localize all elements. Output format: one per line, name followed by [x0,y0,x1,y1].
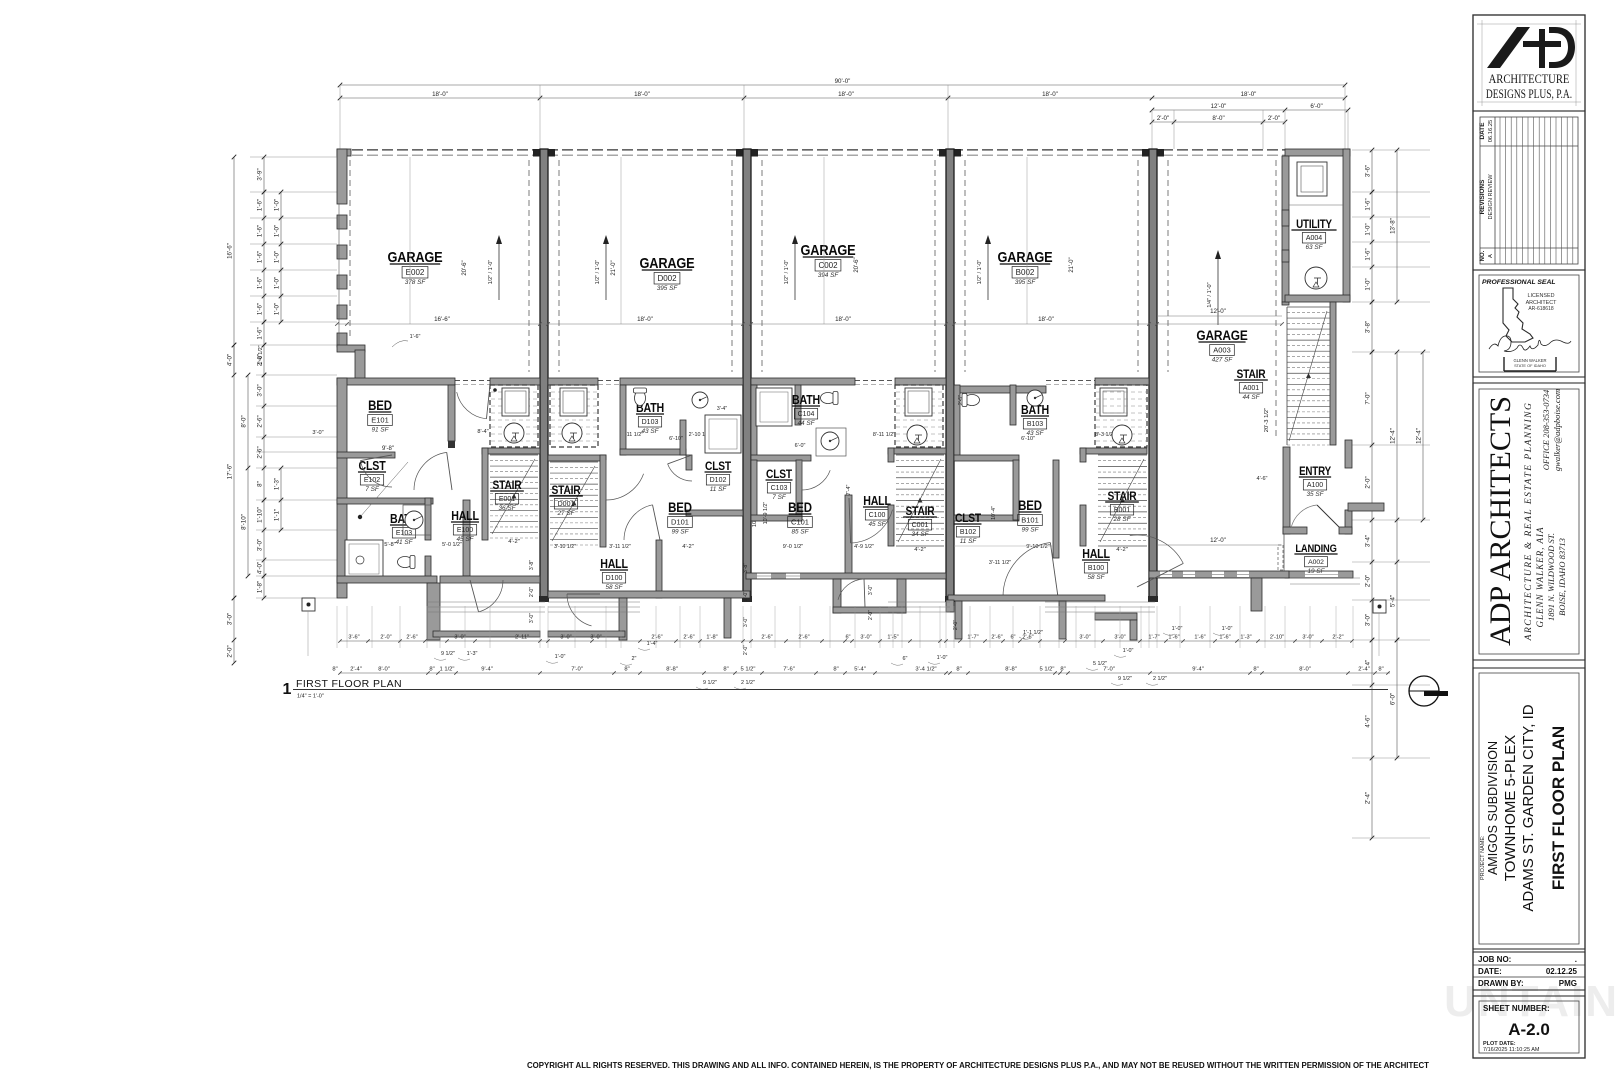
svg-text:3'-0": 3'-0" [743,617,749,627]
svg-text:3'-0": 3'-0" [227,613,234,625]
svg-text:2'-11": 2'-11" [515,635,529,641]
svg-text:.: . [1575,955,1577,964]
svg-text:8": 8" [1253,666,1258,672]
svg-text:1'-0": 1'-0" [555,654,566,660]
svg-text:4'-2": 4'-2" [914,547,926,553]
svg-text:16'-6": 16'-6" [434,316,450,323]
svg-text:GARAGE: GARAGE [801,241,856,258]
svg-text:STATE OF IDAHO: STATE OF IDAHO [1514,363,1546,368]
svg-text:3'-10 1/2": 3'-10 1/2" [554,544,576,550]
svg-text:1'-7": 1'-7" [967,635,978,641]
svg-text:5'-8": 5'-8" [384,542,396,548]
svg-text:GARAGE: GARAGE [1196,327,1248,343]
svg-text:COPYRIGHT ALL RIGHTS RESERVED.: COPYRIGHT ALL RIGHTS RESERVED. THIS DRAW… [527,1061,1429,1070]
svg-text:3'-0": 3'-0" [1079,635,1090,641]
svg-text:28 SF: 28 SF [1112,516,1131,523]
svg-text:6'-10": 6'-10" [669,436,683,442]
svg-text:TOWNHOME 5-PLEX: TOWNHOME 5-PLEX [1502,735,1519,881]
svg-text:11 SF: 11 SF [710,486,728,493]
svg-text:E101: E101 [371,416,389,425]
svg-text:9'-4": 9'-4" [481,666,493,672]
svg-text:DATE: DATE [1479,122,1486,140]
svg-text:3'-0": 3'-0" [454,635,465,641]
svg-text:2'-0": 2'-0" [227,645,234,657]
svg-text:2'-4": 2'-4" [350,666,362,672]
svg-text:18'-0": 18'-0" [838,91,854,98]
svg-text:4'-9 1/2": 4'-9 1/2" [854,544,874,550]
svg-text:JOB NO:: JOB NO: [1478,955,1511,964]
svg-text:3'-4 1/2": 3'-4 1/2" [915,666,936,672]
svg-text:21'-0": 21'-0" [611,260,617,275]
svg-text:8": 8" [624,666,629,672]
svg-text:18'-0": 18'-0" [1038,316,1054,323]
svg-text:1'-8": 1'-8" [706,635,717,641]
svg-text:ENTRY: ENTRY [1299,465,1331,478]
svg-text:44 SF: 44 SF [797,420,815,427]
svg-text:5'-0 1/2": 5'-0 1/2" [442,542,462,548]
svg-text:C103: C103 [771,485,788,492]
svg-text:3'-0": 3'-0" [560,635,571,641]
svg-text:2'-0": 2'-0" [380,635,391,641]
svg-text:HALL: HALL [1082,547,1110,561]
svg-text:99 SF: 99 SF [671,529,689,536]
svg-text:BOISE, IDAHO 83713: BOISE, IDAHO 83713 [1557,538,1567,616]
svg-text:gwalker@adpboise.com: gwalker@adpboise.com [1552,389,1562,471]
svg-text:STAIR: STAIR [906,505,935,518]
svg-text:B101: B101 [1021,516,1039,525]
svg-text:16'-6": 16'-6" [227,243,234,259]
svg-text:90'-0": 90'-0" [835,78,851,85]
svg-text:9'-10 1/2": 9'-10 1/2" [1026,544,1050,550]
svg-text:1'-6": 1'-6" [257,251,264,263]
svg-text:99 SF: 99 SF [1021,527,1039,534]
svg-text:8'-0": 8'-0" [241,415,248,427]
svg-text:8'-8": 8'-8" [1005,666,1017,672]
svg-text:3'-0": 3'-0" [868,585,874,595]
svg-text:GARAGE: GARAGE [640,254,695,271]
svg-text:STAIR: STAIR [1237,368,1266,381]
svg-text:8'-4": 8'-4" [477,429,488,435]
svg-text:20'-3 1/2": 20'-3 1/2" [1264,408,1270,432]
svg-text:7'-6": 7'-6" [783,666,795,672]
svg-text:A100: A100 [1307,482,1323,489]
svg-text:27 SF: 27 SF [556,510,575,517]
svg-text:1'-6": 1'-6" [257,225,264,237]
svg-text:GARAGE: GARAGE [388,248,443,265]
svg-text:395 SF: 395 SF [657,285,679,292]
svg-text:10'-4": 10'-4" [991,506,997,520]
svg-text:1'-0": 1'-0" [274,277,281,289]
svg-text:E001: E001 [499,496,515,503]
svg-text:HALL: HALL [451,509,479,523]
svg-text:C104: C104 [798,411,815,418]
svg-text:2'-0": 2'-0" [868,610,874,620]
svg-text:8": 8" [429,666,434,672]
svg-text:ARCHITECTURE: ARCHITECTURE [1489,72,1570,86]
svg-text:12'-0": 12'-0" [1211,103,1227,110]
svg-text:7'-4": 7'-4" [846,485,852,496]
svg-text:B100: B100 [1088,565,1104,572]
svg-text:5 1/2": 5 1/2" [1040,666,1055,672]
svg-text:1'-0": 1'-0" [1365,278,1372,290]
svg-text:2'-4": 2'-4" [1358,666,1370,672]
svg-text:9 1/2": 9 1/2" [1118,676,1132,682]
svg-text:1'-6": 1'-6" [257,277,264,289]
svg-text:CLST: CLST [955,512,981,525]
svg-text:9'-8": 9'-8" [382,446,394,452]
svg-text:3'-0": 3'-0" [1365,614,1372,626]
svg-text:STAIR: STAIR [1108,490,1137,503]
svg-text:7'-0": 7'-0" [1365,392,1372,404]
svg-text:63 SF: 63 SF [1305,244,1323,251]
svg-text:5'-4": 5'-4" [854,666,866,672]
svg-text:7'-0": 7'-0" [1103,666,1115,672]
svg-text:1'-6": 1'-6" [1365,198,1372,210]
svg-text:12'-4": 12'-4" [1416,428,1423,444]
svg-text:C001: C001 [912,522,929,529]
svg-text:41 SF: 41 SF [395,539,413,546]
svg-text:1'-0": 1'-0" [1222,626,1233,632]
svg-text:2'-2": 2'-2" [1332,635,1343,641]
svg-text:2'-6": 2'-6" [991,635,1002,641]
svg-text:A-2.0: A-2.0 [1508,1020,1550,1039]
svg-text:2'-0": 2'-0" [743,645,749,655]
svg-text:1891 N. WILDWOOD ST.: 1891 N. WILDWOOD ST. [1546,533,1556,621]
svg-text:BED: BED [668,500,692,515]
svg-text:85 SF: 85 SF [791,529,809,536]
svg-text:ARCHITECTURE & REAL ESTATE PLA: ARCHITECTURE & REAL ESTATE PLANNING [1524,402,1534,642]
svg-text:1'-5": 1'-5" [887,635,898,641]
svg-text:B002: B002 [1016,268,1035,277]
svg-text:B102: B102 [960,529,976,536]
svg-text:6'-0": 6'-0" [1390,693,1397,705]
svg-text:1/2" / 1'-0": 1/2" / 1'-0" [784,260,790,285]
svg-text:ADP ARCHITECTS: ADP ARCHITECTS [1484,396,1517,646]
svg-text:PMG: PMG [1559,979,1577,988]
svg-text:3'-8": 3'-8" [529,560,535,570]
svg-text:E002: E002 [406,268,425,277]
svg-text:3'-0": 3'-0" [257,384,264,396]
svg-text:1'-0": 1'-0" [274,199,281,211]
svg-text:3'-0": 3'-0" [590,635,601,641]
svg-text:A002: A002 [1308,559,1324,566]
svg-text:2'-0": 2'-0" [1365,575,1372,587]
svg-text:11 SF: 11 SF [960,538,978,545]
svg-text:D002: D002 [657,274,677,283]
svg-text:A: A [1488,254,1494,258]
svg-text:C002: C002 [818,261,838,270]
svg-text:7/16/2025 11:10:25 AM: 7/16/2025 11:10:25 AM [1483,1047,1540,1053]
svg-text:BED: BED [368,398,392,413]
svg-text:1'-3": 1'-3" [467,651,478,657]
svg-text:1: 1 [283,681,292,698]
svg-text:D102: D102 [710,477,727,484]
svg-text:D100: D100 [606,575,623,582]
svg-text:3'-0": 3'-0" [1302,635,1313,641]
svg-text:2'-6": 2'-6" [761,635,772,641]
svg-text:CLST: CLST [705,460,731,473]
svg-text:1'-3": 1'-3" [274,478,281,490]
svg-text:8'-11 1/2": 8'-11 1/2" [873,432,895,438]
svg-text:AR-618618: AR-618618 [1528,306,1554,312]
svg-text:NO.: NO. [1480,250,1486,261]
svg-text:5'-4": 5'-4" [1390,595,1397,607]
svg-text:3'-8": 3'-8" [743,563,749,573]
svg-text:12'-0": 12'-0" [1210,537,1226,544]
svg-text:2'-6": 2'-6" [257,446,264,458]
svg-text:34 SF: 34 SF [911,531,929,538]
svg-text:378 SF: 378 SF [405,279,427,286]
svg-text:2'-6": 2'-6" [798,635,809,641]
svg-text:3'-11 1/2": 3'-11 1/2" [609,544,631,550]
svg-text:FIRST FLOOR PLAN: FIRST FLOOR PLAN [296,678,402,690]
svg-text:1/2" / 1'-0": 1/2" / 1'-0" [595,260,601,285]
svg-text:9'-4": 9'-4" [1192,666,1204,672]
svg-text:9 1/2": 9 1/2" [441,651,455,657]
svg-text:D101: D101 [671,518,689,527]
svg-text:1'-6": 1'-6" [257,303,264,315]
svg-text:8": 8" [956,666,961,672]
svg-text:DESIGN REVIEW: DESIGN REVIEW [1488,174,1494,220]
svg-text:CLST: CLST [766,468,792,481]
svg-text:1'-1 1/2": 1'-1 1/2" [1023,630,1043,636]
svg-text:4'-6": 4'-6" [1365,715,1372,727]
svg-text:4'-2": 4'-2" [1116,547,1128,553]
svg-text:1/4" = 1'-0": 1/4" = 1'-0" [297,694,324,700]
svg-text:BATH: BATH [792,393,820,407]
svg-text:2'-0": 2'-0" [1268,115,1280,122]
svg-text:3'-0": 3'-0" [312,430,323,436]
svg-text:1'-0": 1'-0" [274,251,281,263]
svg-text:8'-0": 8'-0" [378,666,390,672]
svg-text:1'-0": 1'-0" [937,655,948,661]
svg-text:18'-0": 18'-0" [1241,91,1257,98]
svg-text:UNTAIN: UNTAIN [1444,977,1619,1026]
svg-text:3'-4": 3'-4" [1365,535,1372,547]
svg-text:OFFICE 208-353-0734: OFFICE 208-353-0734 [1541,389,1551,470]
svg-text:3'-4": 3'-4" [717,406,727,412]
svg-text:2'-0": 2'-0" [1157,115,1169,122]
svg-text:9'-0 1/2": 9'-0 1/2" [783,544,803,550]
svg-text:1/4" / 1'-0": 1/4" / 1'-0" [1207,282,1213,307]
svg-text:18'-0": 18'-0" [432,91,448,98]
svg-text:8'-10": 8'-10" [241,514,248,530]
svg-text:5 1/2": 5 1/2" [741,666,756,672]
svg-text:1'-6": 1'-6" [257,327,264,339]
svg-text:1'-0": 1'-0" [274,303,281,315]
svg-text:A001: A001 [1243,385,1259,392]
svg-text:CLST: CLST [358,459,385,473]
svg-text:A003: A003 [1213,346,1231,355]
svg-text:2'-6": 2'-6" [257,415,264,427]
svg-text:1'-6": 1'-6" [257,199,264,211]
svg-text:18'-0": 18'-0" [634,91,650,98]
svg-text:PROFESSIONAL SEAL: PROFESSIONAL SEAL [1482,279,1556,286]
svg-text:8": 8" [257,481,264,487]
svg-text:58 SF: 58 SF [605,584,623,591]
svg-text:8": 8" [332,666,337,672]
svg-text:E103: E103 [396,530,412,537]
svg-text:8'-0": 8'-0" [1212,115,1224,122]
svg-text:LICENSED: LICENSED [1528,293,1555,299]
svg-text:20'-6": 20'-6" [854,257,860,272]
svg-text:3'-0": 3'-0" [529,613,535,623]
svg-text:1'-8": 1'-8" [257,581,264,593]
svg-text:6'-10": 6'-10" [1021,436,1035,442]
svg-text:6": 6" [1010,635,1015,641]
svg-text:8": 8" [1378,666,1383,672]
svg-text:1'-0": 1'-0" [1172,626,1183,632]
svg-text:1 1/2": 1 1/2" [440,666,455,672]
svg-text:3'-6": 3'-6" [348,635,359,641]
svg-text:ADAMS ST. GARDEN CITY, ID: ADAMS ST. GARDEN CITY, ID [1520,704,1537,911]
svg-text:21'-0": 21'-0" [1069,257,1075,272]
svg-text:18'-0": 18'-0" [637,316,653,323]
svg-text:2 1/2": 2 1/2" [1153,676,1167,682]
svg-text:STAIR: STAIR [552,484,581,497]
svg-text:STAIR: STAIR [493,479,522,492]
svg-text:3'-0": 3'-0" [1114,635,1125,641]
svg-text:3'-6": 3'-6" [1365,165,1372,177]
svg-text:8'-8": 8'-8" [666,666,678,672]
svg-text:3'-11 1/2": 3'-11 1/2" [989,560,1011,566]
svg-text:2'-4": 2'-4" [1365,792,1372,804]
svg-text:427 SF: 427 SF [1212,357,1234,364]
svg-text:12'-0": 12'-0" [1210,308,1226,315]
svg-text:C100: C100 [869,512,886,519]
svg-text:1/2" / 1'-0": 1/2" / 1'-0" [977,260,983,285]
svg-text:2'-10": 2'-10" [1270,635,1284,641]
svg-text:18'-0": 18'-0" [1042,91,1058,98]
svg-text:2'-6": 2'-6" [406,635,417,641]
svg-text:58 SF: 58 SF [1087,574,1105,581]
svg-text:2'-0": 2'-0" [743,591,749,601]
svg-text:1'-0": 1'-0" [1123,648,1134,654]
svg-text:4'-2": 4'-2" [682,544,694,550]
svg-text:GARAGE: GARAGE [998,248,1053,265]
svg-text:44 SF: 44 SF [1242,394,1260,401]
svg-text:13'-8": 13'-8" [1390,218,1397,234]
svg-text:43 SF: 43 SF [641,428,659,435]
svg-text:E102: E102 [364,477,380,484]
svg-text:1'-0": 1'-0" [1365,223,1372,235]
svg-text:20'-6": 20'-6" [462,260,468,275]
svg-text:2'-6": 2'-6" [683,635,694,641]
svg-text:4'-2": 4'-2" [508,539,520,545]
svg-text:91 SF: 91 SF [371,427,389,434]
svg-text:3'-9": 3'-9" [257,168,264,180]
svg-text:36 SF: 36 SF [498,505,516,512]
svg-text:REVISIONS: REVISIONS [1479,179,1486,215]
svg-text:35 SF: 35 SF [1306,491,1324,498]
svg-text:DESIGNS PLUS, P.A.: DESIGNS PLUS, P.A. [1486,88,1572,102]
svg-text:3'-0": 3'-0" [860,635,871,641]
svg-text:06.16.25: 06.16.25 [1488,120,1494,143]
svg-text:HALL: HALL [600,557,628,571]
svg-text:2'-0": 2'-0" [529,587,535,597]
svg-text:HALL: HALL [863,494,891,508]
svg-text:1'-6": 1'-6" [1194,635,1205,641]
svg-text:10'-9 1/2": 10'-9 1/2" [763,502,769,525]
svg-text:4'-0": 4'-0" [227,354,234,366]
svg-text:8": 8" [723,666,728,672]
svg-text:GLENN WALKER, AIA: GLENN WALKER, AIA [1535,527,1545,628]
svg-text:1'-6": 1'-6" [410,334,421,340]
svg-text:1'-1": 1'-1" [274,509,281,521]
svg-text:6'-0": 6'-0" [1310,103,1322,110]
svg-text:4'-6": 4'-6" [1257,476,1268,482]
svg-text:SHEET NUMBER:: SHEET NUMBER: [1483,1004,1550,1013]
svg-text:D103: D103 [642,419,659,426]
svg-text:1'-6": 1'-6" [1365,248,1372,260]
svg-text:4": 4" [1365,660,1372,666]
svg-text:12'-4": 12'-4" [1390,428,1397,444]
svg-text:C101: C101 [791,518,809,527]
svg-text:2'-0": 2'-0" [1365,476,1372,488]
svg-text:BED: BED [788,500,812,515]
svg-text:02.12.25: 02.12.25 [1546,967,1578,976]
svg-text:2 1/2": 2 1/2" [741,680,755,686]
svg-text:7'-0": 7'-0" [571,666,583,672]
svg-text:2": 2" [632,656,637,662]
svg-text:3'-0": 3'-0" [257,539,264,551]
svg-text:9 1/2": 9 1/2" [703,680,717,686]
svg-text:BED: BED [1018,498,1042,513]
svg-text:6'-0": 6'-0" [795,443,806,449]
svg-text:B001: B001 [1114,507,1130,514]
svg-text:6": 6" [903,656,908,662]
svg-text:E100: E100 [457,527,473,534]
svg-text:19 SF: 19 SF [1307,568,1325,575]
svg-text:A004: A004 [1306,235,1322,242]
svg-text:3'-8": 3'-8" [1365,321,1372,333]
svg-text:17'-6": 17'-6" [227,464,234,480]
svg-text:1'-4": 1'-4" [647,641,658,647]
svg-text:D001: D001 [558,501,575,508]
svg-text:18'-0": 18'-0" [835,316,851,323]
svg-text:8": 8" [833,666,838,672]
svg-text:8'-0": 8'-0" [1299,666,1311,672]
svg-text:DRAWN BY:: DRAWN BY: [1478,979,1524,988]
svg-text:1'-0": 1'-0" [274,225,281,237]
svg-text:2'-6": 2'-6" [651,635,662,641]
svg-text:B103: B103 [1027,421,1043,428]
svg-text:1'-3": 1'-3" [1240,635,1251,641]
svg-text:7 SF: 7 SF [365,486,380,493]
svg-text:1'-6 1/2": 1'-6 1/2" [258,345,264,364]
svg-text:UTILITY: UTILITY [1296,218,1332,231]
svg-text:AMIGOS SUBDIVISION: AMIGOS SUBDIVISION [1486,741,1500,875]
svg-text:7 SF: 7 SF [772,494,787,501]
svg-text:4'-0": 4'-0" [257,562,264,574]
svg-text:FIRST FLOOR PLAN: FIRST FLOOR PLAN [1549,726,1568,890]
svg-text:1/2" / 1'-0": 1/2" / 1'-0" [488,260,494,285]
svg-text:1'-10": 1'-10" [257,507,264,523]
svg-text:DATE:: DATE: [1478,967,1502,976]
svg-text:394 SF: 394 SF [818,272,840,279]
svg-text:395 SF: 395 SF [1015,279,1037,286]
svg-text:1'-7": 1'-7" [1148,635,1159,641]
